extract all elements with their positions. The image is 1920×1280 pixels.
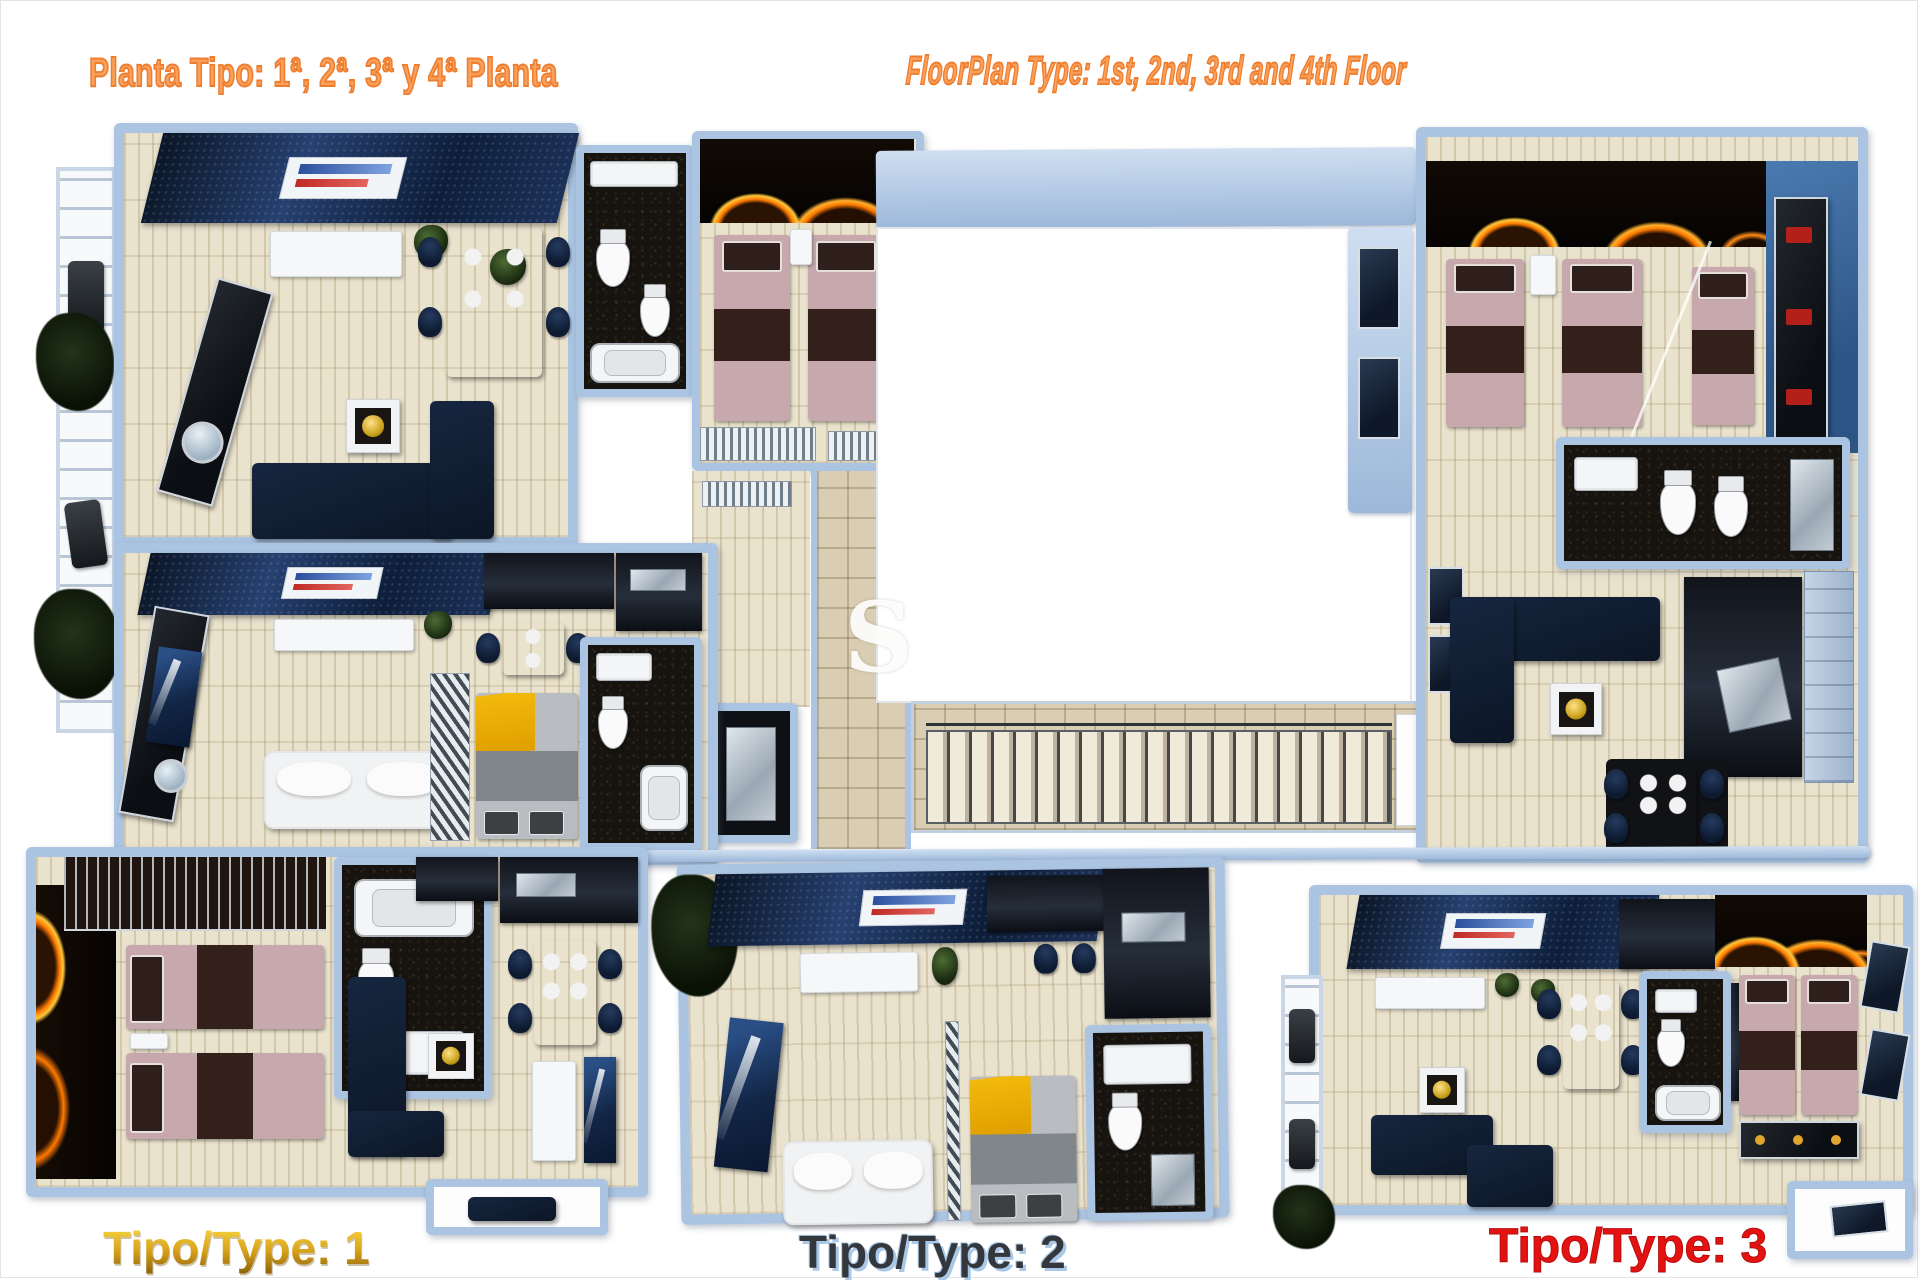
window: [1358, 247, 1400, 329]
artwork: [584, 1057, 616, 1163]
patio-right-wall: [1348, 227, 1412, 513]
apt-right: [1416, 127, 1868, 863]
kitchen-cabinets: [1804, 571, 1854, 783]
nightstand: [1530, 255, 1556, 295]
bed: [1739, 975, 1795, 1115]
sofa-chaise: [430, 401, 494, 539]
floorplan-type-2: [677, 857, 1230, 1225]
staircase: [926, 730, 1392, 824]
plant: [932, 947, 959, 985]
bed: [1446, 259, 1524, 427]
open-wardrobe: [64, 857, 326, 931]
toilet: [596, 239, 630, 287]
cooktop: [516, 873, 576, 897]
window-panel: [1829, 1200, 1888, 1238]
kitchen-counter: [987, 875, 1106, 933]
gray-blanket: [970, 1134, 1077, 1185]
elevator: [706, 703, 798, 843]
window: [1859, 1028, 1910, 1102]
bed: [1801, 975, 1857, 1115]
bed-yellow: [476, 693, 578, 839]
kitchen-hood: [416, 857, 498, 901]
nightstand: [790, 229, 812, 265]
kitchen-counter: [616, 553, 702, 631]
closet: [702, 481, 792, 507]
window: [1859, 940, 1910, 1014]
bathtub: [1655, 1085, 1721, 1121]
kitchen-counter: [1684, 577, 1802, 777]
plant: [1495, 973, 1519, 997]
bidet: [1714, 487, 1748, 537]
label-type-2: Tipo/Type: 2: [799, 1225, 1066, 1279]
brand-logo: [1440, 913, 1546, 949]
shower-tray: [640, 765, 688, 831]
sink: [1655, 989, 1697, 1013]
coffee-table: [1419, 1067, 1465, 1113]
accent-wall: [137, 553, 502, 615]
plant: [424, 611, 452, 639]
coffee-table: [428, 1033, 474, 1079]
yellow-duvet: [476, 693, 535, 758]
label-type-3: Tipo/Type: 3: [1489, 1219, 1767, 1274]
vanity-sink: [1574, 457, 1638, 491]
bed: [126, 945, 324, 1029]
oven: [1121, 912, 1185, 943]
brand-logo: [859, 889, 968, 927]
bathroom: [1639, 971, 1731, 1133]
balcony: [1787, 1181, 1913, 1259]
shower-tray: [590, 343, 680, 383]
shelf-light: [1793, 1135, 1803, 1145]
bidet: [640, 293, 670, 337]
corner-sofa-arm: [1450, 597, 1514, 743]
kitchen-counter: [500, 857, 638, 923]
hedge-plant: [1273, 1185, 1335, 1249]
lit-shelf: [1739, 1121, 1859, 1159]
nightstand: [130, 1033, 168, 1049]
chair: [546, 237, 570, 267]
pillow: [529, 811, 564, 834]
window: [1358, 357, 1400, 439]
balcony-bench: [468, 1197, 556, 1221]
chair: [546, 307, 570, 337]
dining-table: [534, 941, 596, 1045]
kitchen-wall-units: [1103, 867, 1211, 1018]
bed-yellow: [970, 1075, 1078, 1222]
toilet: [1657, 1027, 1685, 1067]
pillow: [980, 1194, 1016, 1218]
media-console: [274, 619, 414, 651]
dining-table: [1563, 981, 1619, 1089]
watermark: S: [844, 581, 913, 694]
elevator-door: [726, 727, 776, 821]
chair: [508, 949, 532, 979]
brand-logo: [281, 567, 384, 599]
clothes: [1786, 389, 1812, 405]
balcony: [426, 1179, 608, 1235]
sideboard: [270, 231, 402, 277]
kitchen-hood: [1619, 899, 1715, 969]
yellow-duvet: [970, 1075, 1032, 1142]
shower: [1151, 1154, 1196, 1207]
apt-right-bathroom: [1556, 437, 1850, 569]
round-mirror: [154, 759, 188, 793]
apt-left-bathroom: [576, 145, 694, 397]
coffee-table: [1550, 683, 1602, 735]
gray-blanket: [476, 751, 578, 801]
sofa: [782, 1139, 933, 1225]
pillow: [484, 811, 519, 834]
stair-corridor: [911, 701, 1431, 833]
hedge-plant: [36, 313, 114, 411]
bed: [808, 235, 884, 421]
round-mirror: [177, 417, 229, 469]
fridge: [1716, 657, 1792, 733]
chair: [418, 307, 442, 337]
dining-table: [1630, 767, 1696, 847]
chair: [1700, 813, 1724, 843]
shelf-light: [1831, 1135, 1841, 1145]
bathroom: [1085, 1023, 1214, 1221]
bed: [1562, 259, 1642, 427]
brand-logo: [279, 157, 407, 199]
fire-mural-wall: [1426, 161, 1766, 247]
clothes: [1786, 227, 1812, 243]
bed: [714, 235, 790, 421]
toilet: [1108, 1102, 1143, 1150]
chair: [598, 1003, 622, 1033]
shelf-light: [1755, 1135, 1765, 1145]
vanity-sink: [1103, 1044, 1192, 1085]
fire-mural-wall: [1715, 895, 1867, 967]
chair: [598, 949, 622, 979]
toilet: [1660, 481, 1696, 535]
toilet: [598, 705, 628, 749]
sink: [590, 161, 678, 187]
wardrobe-rack: [1774, 197, 1828, 447]
clothes: [1786, 309, 1812, 325]
floorplan-sheet: Planta Tipo: 1ª, 2ª, 3ª y 4ª Planta Floo…: [0, 0, 1918, 1278]
chair: [1700, 769, 1724, 799]
chair: [1604, 769, 1628, 799]
slatted-divider: [945, 1021, 962, 1221]
pillow: [1026, 1194, 1062, 1218]
apt-lower-left-bathroom: [580, 637, 702, 851]
apt-lower-left: [114, 543, 718, 865]
dining-table: [446, 227, 542, 377]
chair: [1604, 813, 1628, 843]
sofa-foot: [348, 1111, 444, 1157]
sideboard: [532, 1061, 576, 1161]
sink: [596, 653, 652, 681]
shower: [1790, 459, 1834, 551]
patio-void: [876, 227, 1412, 703]
main-floorplan: S: [56, 123, 1874, 865]
chair: [508, 1003, 532, 1033]
patio-top-wall: [876, 147, 1417, 229]
bed: [126, 1053, 324, 1139]
kitchen-hood: [484, 553, 614, 609]
sofa: [252, 463, 452, 539]
lounger: [1289, 1119, 1315, 1169]
label-type-1: Tipo/Type: 1: [103, 1221, 370, 1275]
sideboard: [1375, 977, 1485, 1009]
chair: [418, 237, 442, 267]
stool: [1072, 943, 1096, 973]
chair: [1537, 989, 1561, 1019]
floorplan-type-1: [26, 847, 648, 1197]
breakfast-table: [502, 623, 564, 675]
title-spanish: Planta Tipo: 1ª, 2ª, 3ª y 4ª Planta: [89, 51, 558, 96]
accent-wall: [141, 133, 579, 223]
lounger: [1289, 1009, 1315, 1063]
accent-wall: [1346, 895, 1659, 969]
corner-sofa-arm: [1467, 1145, 1553, 1207]
stool: [1034, 944, 1058, 974]
console-table: [800, 951, 919, 993]
slatted-divider: [430, 673, 470, 841]
sofa: [264, 751, 454, 829]
wardrobe: [700, 427, 816, 461]
chair: [476, 633, 500, 663]
hedge-plant: [34, 589, 120, 699]
apt-left-living-room: [114, 123, 578, 547]
artwork: [714, 1017, 784, 1172]
coffee-table: [346, 399, 400, 453]
chair: [1537, 1045, 1561, 1075]
lounger: [64, 499, 109, 569]
title-english: FloorPlan Type: 1st, 2nd, 3rd and 4th Fl…: [905, 49, 1407, 94]
bed: [1692, 267, 1754, 425]
floorplan-type-3: [1309, 885, 1913, 1215]
cooktop: [630, 569, 686, 591]
